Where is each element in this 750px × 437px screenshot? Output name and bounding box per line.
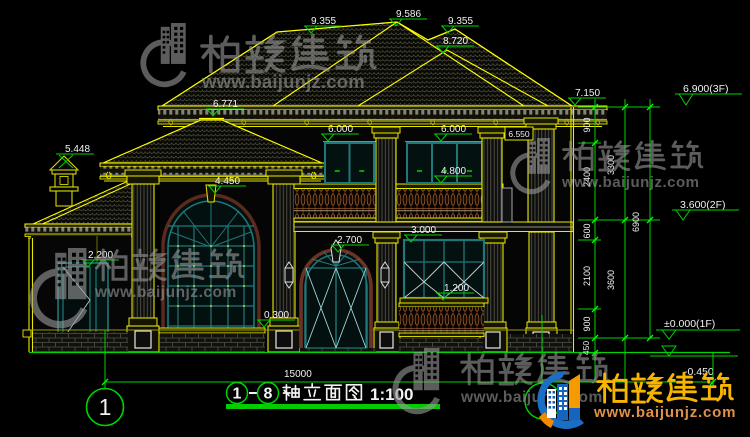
svg-text:±0.000(1F): ±0.000(1F) — [664, 318, 715, 330]
svg-text:2100: 2100 — [582, 266, 592, 286]
svg-text:6.000: 6.000 — [441, 124, 466, 135]
svg-text:1:100: 1:100 — [370, 385, 413, 404]
svg-text:4.800: 4.800 — [441, 166, 466, 177]
svg-text:3.000: 3.000 — [411, 225, 436, 236]
svg-text:9.355: 9.355 — [311, 16, 336, 27]
svg-text:8.720: 8.720 — [443, 36, 468, 47]
svg-text:www.baijunjz.com: www.baijunjz.com — [460, 389, 603, 406]
svg-text:900: 900 — [582, 117, 592, 132]
svg-text:3600: 3600 — [606, 270, 616, 290]
svg-text:15000: 15000 — [284, 369, 312, 380]
svg-text:4.450: 4.450 — [215, 176, 240, 187]
svg-text:450: 450 — [581, 341, 591, 355]
svg-text:6.900(3F): 6.900(3F) — [683, 83, 729, 95]
svg-text:www.baijunjz.com: www.baijunjz.com — [201, 71, 365, 92]
svg-text:7.150: 7.150 — [575, 88, 600, 99]
svg-text:9.355: 9.355 — [448, 16, 473, 27]
svg-text:0.300: 0.300 — [264, 310, 289, 321]
svg-text:900: 900 — [582, 316, 592, 331]
svg-text:www.baijunjz.com: www.baijunjz.com — [593, 404, 736, 421]
svg-text:2.700: 2.700 — [337, 235, 362, 246]
svg-text:9.586: 9.586 — [396, 9, 421, 20]
svg-text:1: 1 — [99, 394, 112, 420]
svg-text:6.550: 6.550 — [508, 129, 530, 139]
svg-text:www.baijunjz.com: www.baijunjz.com — [561, 174, 699, 191]
svg-text:6900: 6900 — [631, 212, 641, 232]
svg-text:1.200: 1.200 — [444, 283, 469, 294]
svg-text:3.600(2F): 3.600(2F) — [680, 199, 726, 211]
svg-text:600: 600 — [582, 223, 592, 238]
svg-text:6.000: 6.000 — [328, 124, 353, 135]
svg-text:6.771: 6.771 — [213, 99, 238, 110]
svg-text:www.baijunjz.com: www.baijunjz.com — [94, 284, 237, 301]
svg-text:5.448: 5.448 — [65, 144, 90, 155]
svg-text:1: 1 — [233, 386, 242, 403]
svg-text:8: 8 — [264, 386, 273, 403]
